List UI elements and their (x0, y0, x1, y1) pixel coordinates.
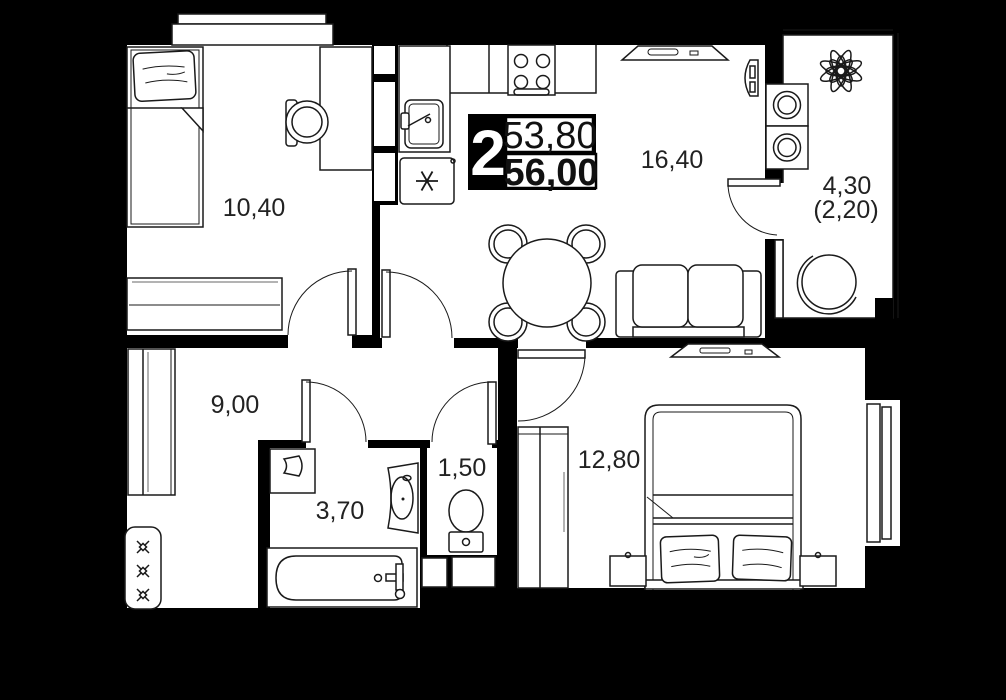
bathtub-icon (267, 548, 417, 607)
doorway-kitchen (382, 336, 454, 349)
doorway-balcony (764, 183, 784, 239)
window-bedroom-1 (172, 14, 333, 45)
bathroom-sink-icon (388, 463, 418, 533)
doorway-wc (430, 439, 492, 449)
balcony-corner-pier (875, 298, 893, 320)
label-kitchen-living-area: 16,40 (641, 146, 704, 174)
single-bed-icon (127, 47, 203, 227)
label-wc-area: 1,50 (438, 454, 487, 482)
shoe-bench-icon (125, 527, 161, 609)
label-hallway-area: 9,00 (211, 391, 260, 419)
tv-bedroom-icon (671, 344, 779, 357)
sink-icon (401, 100, 443, 148)
nightstand-left-icon (610, 553, 646, 587)
double-bed-icon (645, 405, 803, 590)
dresser-icon (127, 278, 282, 330)
doorway-bedroom-1 (288, 334, 352, 349)
unit-area-lower: 56,00 (503, 152, 598, 194)
hallway-wardrobe-icon (128, 349, 175, 495)
label-bedroom-1-area: 10,40 (223, 194, 286, 222)
unit-info-plate: 2 53,80 56,00 (468, 114, 599, 194)
unit-area-upper: 53,80 (502, 115, 597, 157)
sofa-icon (616, 265, 761, 337)
label-bedroom-2-area: 12,80 (578, 446, 641, 474)
bedroom-wardrobe-icon (518, 427, 568, 588)
dining-table-icon (503, 239, 591, 327)
unit-rooms-count: 2 (470, 117, 506, 189)
floor-plan: 10,40 16,40 4,30 (2,20) 9,00 3,70 1,50 1… (0, 0, 1006, 700)
doorway-bathroom (306, 439, 368, 449)
electrical-panel-icon (745, 60, 758, 96)
floor-plan-drawing: 10,40 16,40 4,30 (2,20) 9,00 3,70 1,50 1… (0, 0, 1006, 700)
laundry-unit-icon (270, 449, 315, 493)
ventilation-shaft (374, 46, 395, 201)
window-bedroom-2 (865, 400, 900, 546)
label-bathroom-area: 3,70 (316, 497, 365, 525)
fridge-icon (400, 158, 455, 204)
wc-cabinet-icons (422, 557, 495, 587)
tv-living-icon (622, 46, 728, 60)
stove-icon (508, 45, 555, 95)
label-balcony-area-secondary: (2,20) (813, 196, 878, 224)
toilet-icon (449, 490, 483, 552)
desk-icon (320, 47, 372, 170)
washer-dryer-stack-icon (766, 84, 808, 169)
nightstand-right-icon (800, 553, 836, 587)
